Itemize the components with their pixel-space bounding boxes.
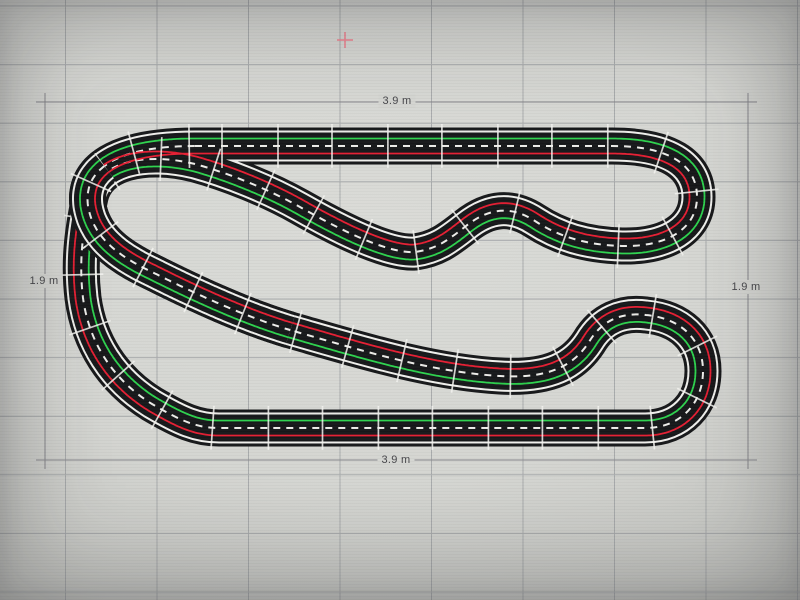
design-canvas-svg <box>0 0 800 600</box>
grid <box>0 0 800 600</box>
dimension-label-top: 3.9 m <box>378 94 415 108</box>
track-joint <box>189 124 190 168</box>
dimension-label-right: 1.9 m <box>727 280 764 294</box>
track-joint <box>510 354 511 398</box>
cursor-cross-marker <box>337 32 353 48</box>
dimension-label-bottom: 3.9 m <box>377 453 414 467</box>
track-joint <box>59 274 103 275</box>
track-designer-canvas[interactable]: 3.9 m 3.9 m 1.9 m 1.9 m <box>0 0 800 600</box>
dimension-label-left: 1.9 m <box>25 274 62 288</box>
